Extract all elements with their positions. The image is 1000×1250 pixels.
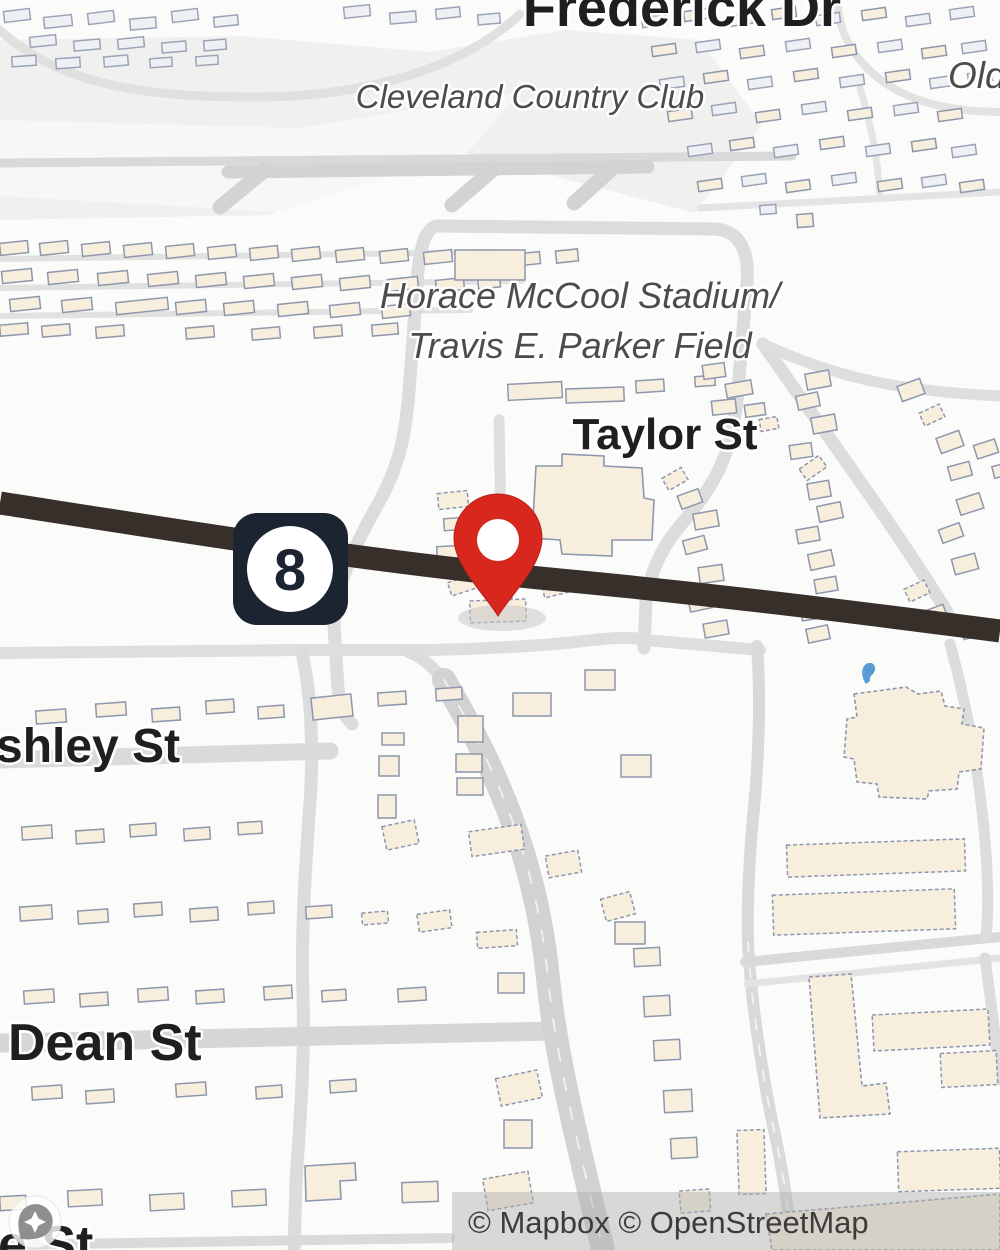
label-taylor-st: Taylor St [572, 410, 757, 459]
blue-poi-icon [862, 663, 875, 684]
attribution-text[interactable]: © Mapbox © OpenStreetMap [468, 1205, 869, 1240]
map-pin-icon[interactable] [454, 494, 542, 616]
label-old: Old [948, 55, 1000, 96]
label-frederick-dr: Frederick Dr [523, 0, 841, 38]
label-dean-st: Dean St [8, 1014, 202, 1072]
label-stadium-line1: Horace McCool Stadium/ [380, 275, 784, 316]
label-ashley-st: shley St [0, 720, 180, 773]
route-shield-number: 8 [274, 538, 306, 603]
route-8-shield: 8 [233, 513, 348, 625]
map-viewport[interactable]: Frederick Dr Cleveland Country Club Old … [0, 0, 1000, 1250]
attribution-bar: © Mapbox © OpenStreetMap [452, 1192, 1000, 1250]
label-stadium-line2: Travis E. Parker Field [408, 325, 752, 366]
label-cleveland-country-club: Cleveland Country Club [356, 78, 705, 115]
map-canvas[interactable]: Frederick Dr Cleveland Country Club Old … [0, 0, 1000, 1250]
